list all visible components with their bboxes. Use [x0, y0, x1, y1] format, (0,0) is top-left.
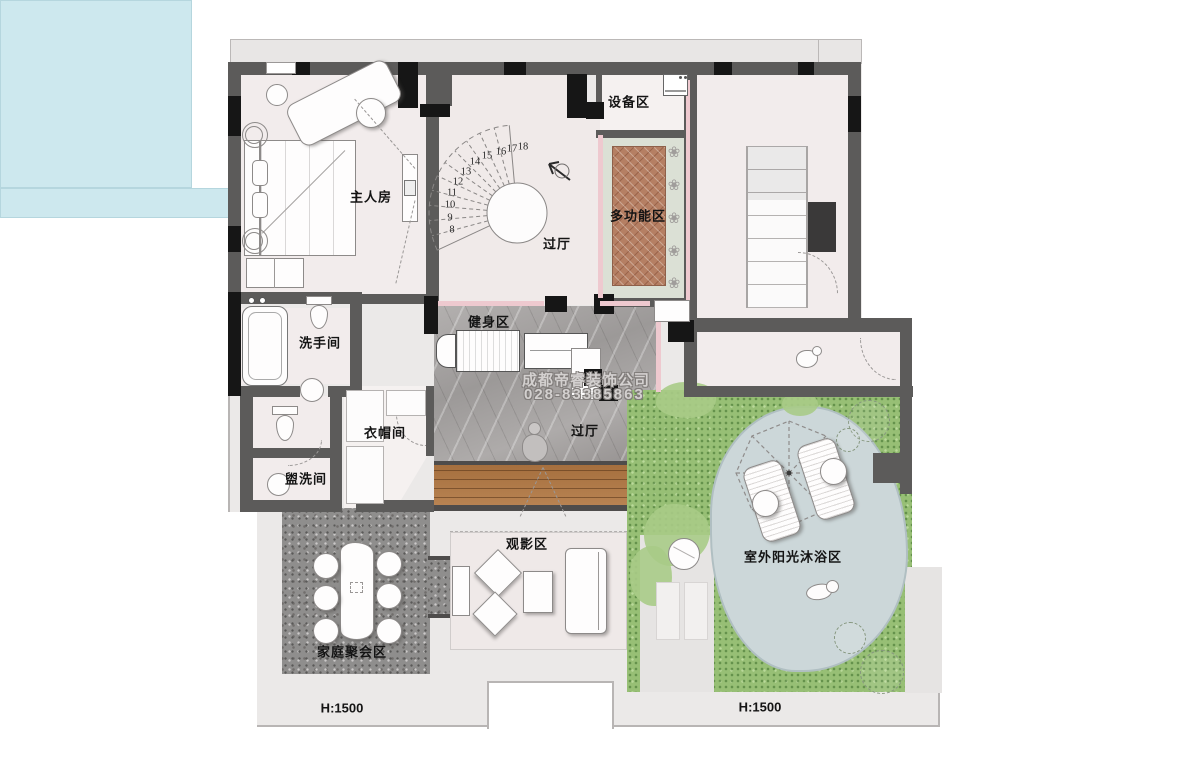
- dining-chair: [376, 618, 402, 644]
- sofa: [565, 548, 607, 634]
- toilet-tank: [306, 296, 332, 305]
- dining-chair: [376, 583, 402, 609]
- dresser-divider: [274, 258, 275, 288]
- equipment-knob: [679, 76, 682, 79]
- label-master-bedroom: 主人房: [350, 187, 392, 206]
- faucet-knob: [259, 297, 266, 304]
- plant-motif-icon: ❀: [668, 143, 681, 161]
- lounger-side-table: [752, 490, 779, 517]
- plant-motif-icon: ❀: [668, 209, 681, 227]
- floor-foyer-vestibule: [450, 73, 567, 118]
- label-outdoor-sunbathing-zone: 室外阳光沐浴区: [744, 547, 842, 566]
- tree-icon: [834, 622, 866, 654]
- bathtub-inner: [248, 312, 282, 380]
- media-cabinet: [452, 566, 470, 616]
- stair-number: 17: [507, 144, 518, 155]
- table-center-mark: [350, 582, 363, 593]
- cutout-bottom-notch: [487, 681, 614, 729]
- wall: [596, 74, 602, 104]
- label-bathroom: 洗手间: [299, 333, 341, 352]
- stair-number: 11: [447, 188, 457, 199]
- wall: [426, 386, 434, 456]
- bed: [260, 140, 356, 256]
- wall: [240, 386, 300, 397]
- coffee-table: [523, 571, 553, 613]
- cutout-left: [228, 512, 257, 729]
- chaise-side-table: [356, 98, 386, 128]
- label-foyer-lower: 过厅: [571, 421, 599, 440]
- wall-pier: [420, 104, 450, 117]
- stair-number: 12: [453, 177, 464, 188]
- stair-number: 16: [496, 147, 507, 158]
- label-cinema-zone: 观影区: [506, 534, 548, 553]
- stair-number: 9: [447, 213, 452, 224]
- window-opening: [228, 96, 241, 136]
- equipment-unit-line: [665, 90, 686, 92]
- wall: [240, 500, 332, 512]
- tree-icon: [860, 650, 904, 694]
- tv-icon: [404, 180, 416, 196]
- faucet-knob: [248, 297, 255, 304]
- window-opening: [848, 96, 861, 132]
- label-multifunction-zone: 多功能区: [610, 206, 666, 225]
- wall-pier: [567, 74, 587, 118]
- wardrobe-shelf: [346, 446, 384, 504]
- label-foyer-upper: 过厅: [543, 234, 571, 253]
- stair-number: 8: [449, 225, 454, 236]
- accent-wall: [600, 301, 650, 306]
- wall: [426, 74, 452, 106]
- roof-band-top: [230, 39, 848, 63]
- pool: [0, 0, 192, 188]
- basin: [300, 378, 324, 402]
- sofa-backrest-line: [598, 552, 599, 630]
- wall: [690, 318, 912, 332]
- hall-cabinet: [654, 300, 690, 322]
- lounger-side-table: [820, 458, 847, 485]
- accent-wall: [686, 80, 690, 318]
- garden-path-right: [905, 567, 942, 693]
- label-washroom: 盥洗间: [285, 469, 327, 488]
- plant-motif-icon: ❀: [668, 242, 681, 260]
- window-opening: [798, 62, 814, 75]
- wall: [228, 62, 860, 75]
- ceiling-fan-icon: [245, 126, 263, 144]
- wall: [873, 453, 902, 483]
- cinema-dashed-edge: [450, 531, 627, 532]
- label-equipment-zone: 设备区: [608, 92, 650, 111]
- plant-motif-icon: ❀: [668, 274, 681, 292]
- cutout-right: [912, 318, 942, 568]
- watermark-phone: 028-83385863: [524, 386, 645, 403]
- label-fitness-zone: 健身区: [468, 312, 510, 331]
- window-opening: [228, 292, 241, 396]
- label-family-gathering-zone: 家庭聚会区: [317, 642, 387, 661]
- stair-number: 13: [461, 167, 472, 178]
- equipment-knob: [684, 76, 687, 79]
- stair-number: 14: [470, 157, 481, 168]
- wall: [350, 296, 362, 396]
- treadmill-belt: [456, 330, 520, 372]
- window-opening: [398, 62, 418, 108]
- garden-table: [668, 538, 700, 570]
- wall: [330, 396, 342, 512]
- wall: [596, 130, 688, 138]
- window-opening: [228, 226, 241, 252]
- stair-number: 18: [518, 142, 529, 153]
- ceiling-fan-icon: [245, 232, 263, 250]
- stepping-slab: [684, 582, 708, 640]
- pillow: [252, 160, 268, 186]
- wall: [362, 294, 426, 304]
- dresser: [246, 258, 304, 288]
- window-opening: [504, 62, 526, 75]
- dining-chair: [313, 618, 339, 644]
- person-sketch-head: [812, 346, 822, 356]
- dining-chair: [313, 553, 339, 579]
- plant-motif-icon: ❀: [668, 176, 681, 194]
- height-mark-left: H:1500: [321, 701, 364, 716]
- stepping-slab: [656, 582, 680, 640]
- stair-landing-shade: [748, 146, 806, 200]
- stool: [266, 84, 288, 106]
- label-cloakroom: 衣帽间: [364, 423, 406, 442]
- wall-pier: [668, 320, 694, 342]
- wall: [693, 386, 913, 397]
- stair-number: 15: [482, 151, 493, 162]
- stair-number: 10: [445, 200, 456, 211]
- dog-sketch-head: [826, 580, 839, 593]
- stair-wall-stub: [808, 202, 836, 252]
- window-opening: [714, 62, 732, 75]
- pillow: [252, 192, 268, 218]
- wardrobe-shelf: [386, 390, 426, 416]
- floor-plan-canvas: 8 9 10 11 12 13 14 15 16 17 18 ❀ ❀ ❀ ❀ ❀: [0, 0, 1200, 766]
- dining-chair: [376, 551, 402, 577]
- treadmill-hood: [436, 334, 456, 368]
- person-sketch: [522, 434, 548, 462]
- toilet-tank: [272, 406, 298, 415]
- cutout-top-right: [862, 36, 942, 320]
- dining-chair: [313, 585, 339, 611]
- wall-pier: [586, 102, 604, 119]
- bedroom-window: [266, 62, 296, 74]
- height-mark-right: H:1500: [739, 700, 782, 715]
